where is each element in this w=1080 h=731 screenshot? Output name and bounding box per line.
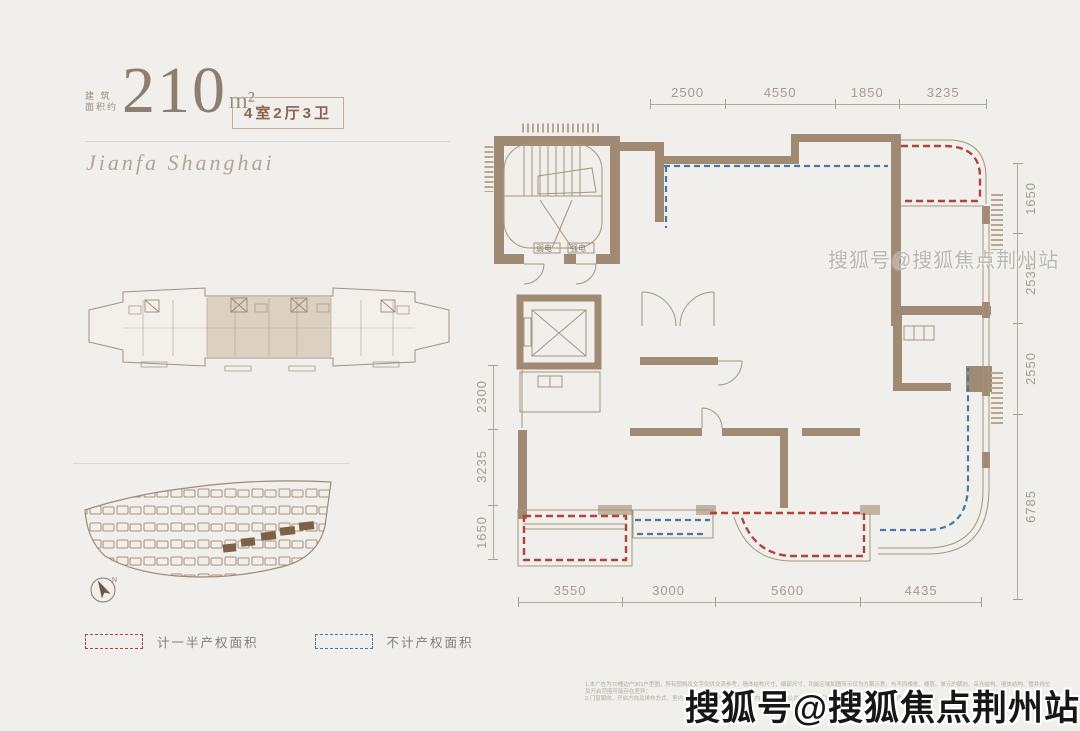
- area-value: 210: [122, 60, 227, 123]
- kitchen: [520, 372, 600, 412]
- dimension-value: 3235: [474, 450, 489, 483]
- dimension-segment: 4550: [725, 78, 835, 104]
- dimension-segment: 1850: [835, 78, 899, 104]
- legend-label: 计一半产权面积: [157, 632, 259, 651]
- balcony-top-right-outline: [901, 140, 986, 204]
- dimension-value: 6785: [1023, 490, 1038, 523]
- dimension-value: 1650: [1023, 182, 1038, 215]
- dimension-value: 2500: [671, 85, 704, 104]
- dimension-segment: 3235: [899, 78, 987, 104]
- dimension-strip-bottom: 3550300056004435: [518, 576, 982, 603]
- balcony-center-blue: [635, 520, 710, 534]
- plan-outlines: [504, 140, 989, 566]
- dimension-segment: 1650: [469, 505, 493, 560]
- dimension-value: 4550: [764, 85, 797, 104]
- dimension-strip-right: 1650253525506785: [1017, 163, 1042, 600]
- dimension-strip-top: 2500455018503235: [650, 78, 987, 105]
- dimension-segment: 3235: [469, 429, 493, 505]
- dimension-value: 3550: [554, 583, 587, 602]
- building-key-plan: [85, 278, 453, 378]
- dimension-segment: 3000: [622, 576, 715, 602]
- legend-label: 不计产权面积: [387, 632, 474, 651]
- site-plan: N: [75, 468, 347, 618]
- blue-dashed-swatch: [315, 634, 373, 649]
- dimension-value: 2550: [1023, 352, 1038, 385]
- dimension-value: 1650: [474, 516, 489, 549]
- dimension-segment: 2500: [650, 78, 725, 104]
- left-panel-separator: [73, 463, 349, 464]
- watermark-inline: 搜狐号@搜狐焦点荆州站: [828, 244, 1059, 273]
- balcony-bottom-mid-red: [710, 513, 864, 556]
- dimension-value: 5600: [771, 583, 804, 602]
- excluded-area-outlines: [635, 166, 968, 534]
- dimension-segment: 2550: [1018, 323, 1042, 414]
- balcony-bottom-left-red: [524, 516, 626, 560]
- north-compass: N: [91, 577, 117, 602]
- dimension-value: 2300: [474, 380, 489, 413]
- balcony-bottom-left-outline: [518, 510, 632, 566]
- area-title: 建 筑 面积约 210 m²: [85, 60, 255, 123]
- brand-script: Jianfa Shanghai: [86, 150, 275, 176]
- dimension-segment: 4435: [860, 576, 982, 602]
- legend-item-half-property: 计一半产权面积: [85, 632, 259, 651]
- half-property-outlines: [524, 146, 980, 560]
- weak-electric-label: 弱电: [536, 243, 552, 253]
- dimension-strip-left: 230032351650: [469, 365, 494, 560]
- dimension-segment: 5600: [715, 576, 860, 602]
- watermark-footer: 搜狐号@搜狐焦点荆州站: [685, 680, 1080, 731]
- compass-needle: [93, 578, 110, 599]
- dimension-segment: 1650: [1018, 163, 1042, 233]
- area-prefix: 建 筑 面积约: [85, 91, 118, 113]
- red-dashed-swatch: [85, 634, 143, 649]
- dimension-value: 1850: [851, 85, 884, 104]
- legend-item-excluded: 不计产权面积: [315, 632, 474, 651]
- legend: 计一半产权面积 不计产权面积: [85, 632, 474, 651]
- dimension-value: 3000: [652, 583, 685, 602]
- unit-layout-badge: 4室2厅3卫: [232, 97, 344, 129]
- floor-plan-page: 建 筑 面积约 210 m² 4室2厅3卫 Jianfa Shanghai: [0, 0, 1080, 727]
- right-side-blue: [880, 368, 968, 530]
- dimension-value: 4435: [905, 583, 938, 602]
- strong-electric-label: 强电: [570, 243, 586, 253]
- area-prefix-line2: 面积约: [85, 102, 118, 113]
- dimension-segment: 2300: [469, 365, 493, 429]
- double-door: [642, 292, 676, 326]
- dimension-value: 3235: [927, 85, 960, 104]
- corridor-blue: [664, 166, 888, 228]
- dimension-segment: 3550: [518, 576, 622, 602]
- dimension-segment: 6785: [1018, 414, 1042, 600]
- unit-floor-plan: 弱电 强电: [480, 80, 1050, 585]
- north-label: N: [112, 577, 117, 584]
- balcony-top-right-red: [901, 146, 980, 198]
- balcony-bottom-curve-outline: [734, 513, 870, 561]
- header-divider: [85, 141, 450, 142]
- area-prefix-line1: 建 筑: [85, 91, 118, 102]
